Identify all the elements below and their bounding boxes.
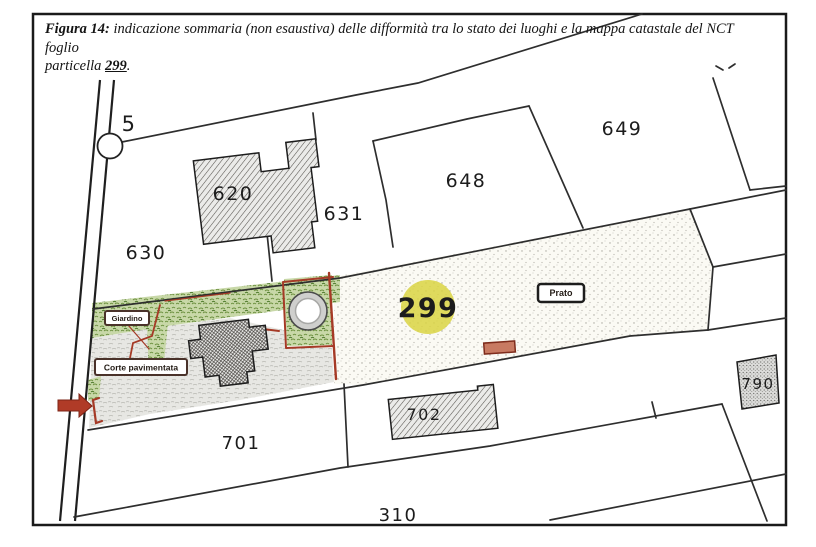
area-label-prato-text: Prato: [549, 288, 573, 298]
parcel-label-630: 630: [126, 242, 167, 264]
parcel-label-5: 5: [122, 112, 137, 136]
parcel-label-299: 299: [398, 293, 459, 324]
document-figure-page: 299 5 620 630 631 648 649 701 702 790 31…: [0, 0, 816, 547]
cadastral-map-svg: 299 5 620 630 631 648 649 701 702 790 31…: [0, 0, 816, 547]
figure-caption: Figura 14: indicazione sommaria (non esa…: [45, 20, 769, 76]
parcel-label-648: 648: [446, 170, 487, 192]
area-label-corte-text: Corte pavimentata: [104, 363, 178, 373]
area-label-giardino: Giardino: [105, 311, 149, 325]
parcel-label-701: 701: [222, 433, 261, 454]
caption-parcel-reference: 299: [105, 58, 127, 74]
parcel-label-702: 702: [406, 405, 441, 424]
road-node-circle: [98, 134, 123, 159]
caption-text-line1: indicazione sommaria (non esaustiva) del…: [45, 21, 733, 56]
caption-figure-number: Figura 14:: [45, 21, 110, 37]
parcel-label-790: 790: [741, 375, 774, 393]
area-label-prato: Prato: [538, 284, 584, 302]
parcel-label-620: 620: [213, 183, 254, 205]
parcel-label-631: 631: [324, 203, 365, 225]
parcel-label-649: 649: [602, 118, 643, 140]
area-label-corte-pavimentata: Corte pavimentata: [95, 359, 187, 375]
red-shed-marker: [484, 341, 516, 354]
parcel-label-310: 310: [379, 505, 418, 526]
caption-period: .: [127, 58, 131, 74]
circular-tank-icon: [289, 292, 327, 330]
area-label-giardino-text: Giardino: [112, 314, 143, 323]
caption-text-line2: particella: [45, 58, 105, 74]
